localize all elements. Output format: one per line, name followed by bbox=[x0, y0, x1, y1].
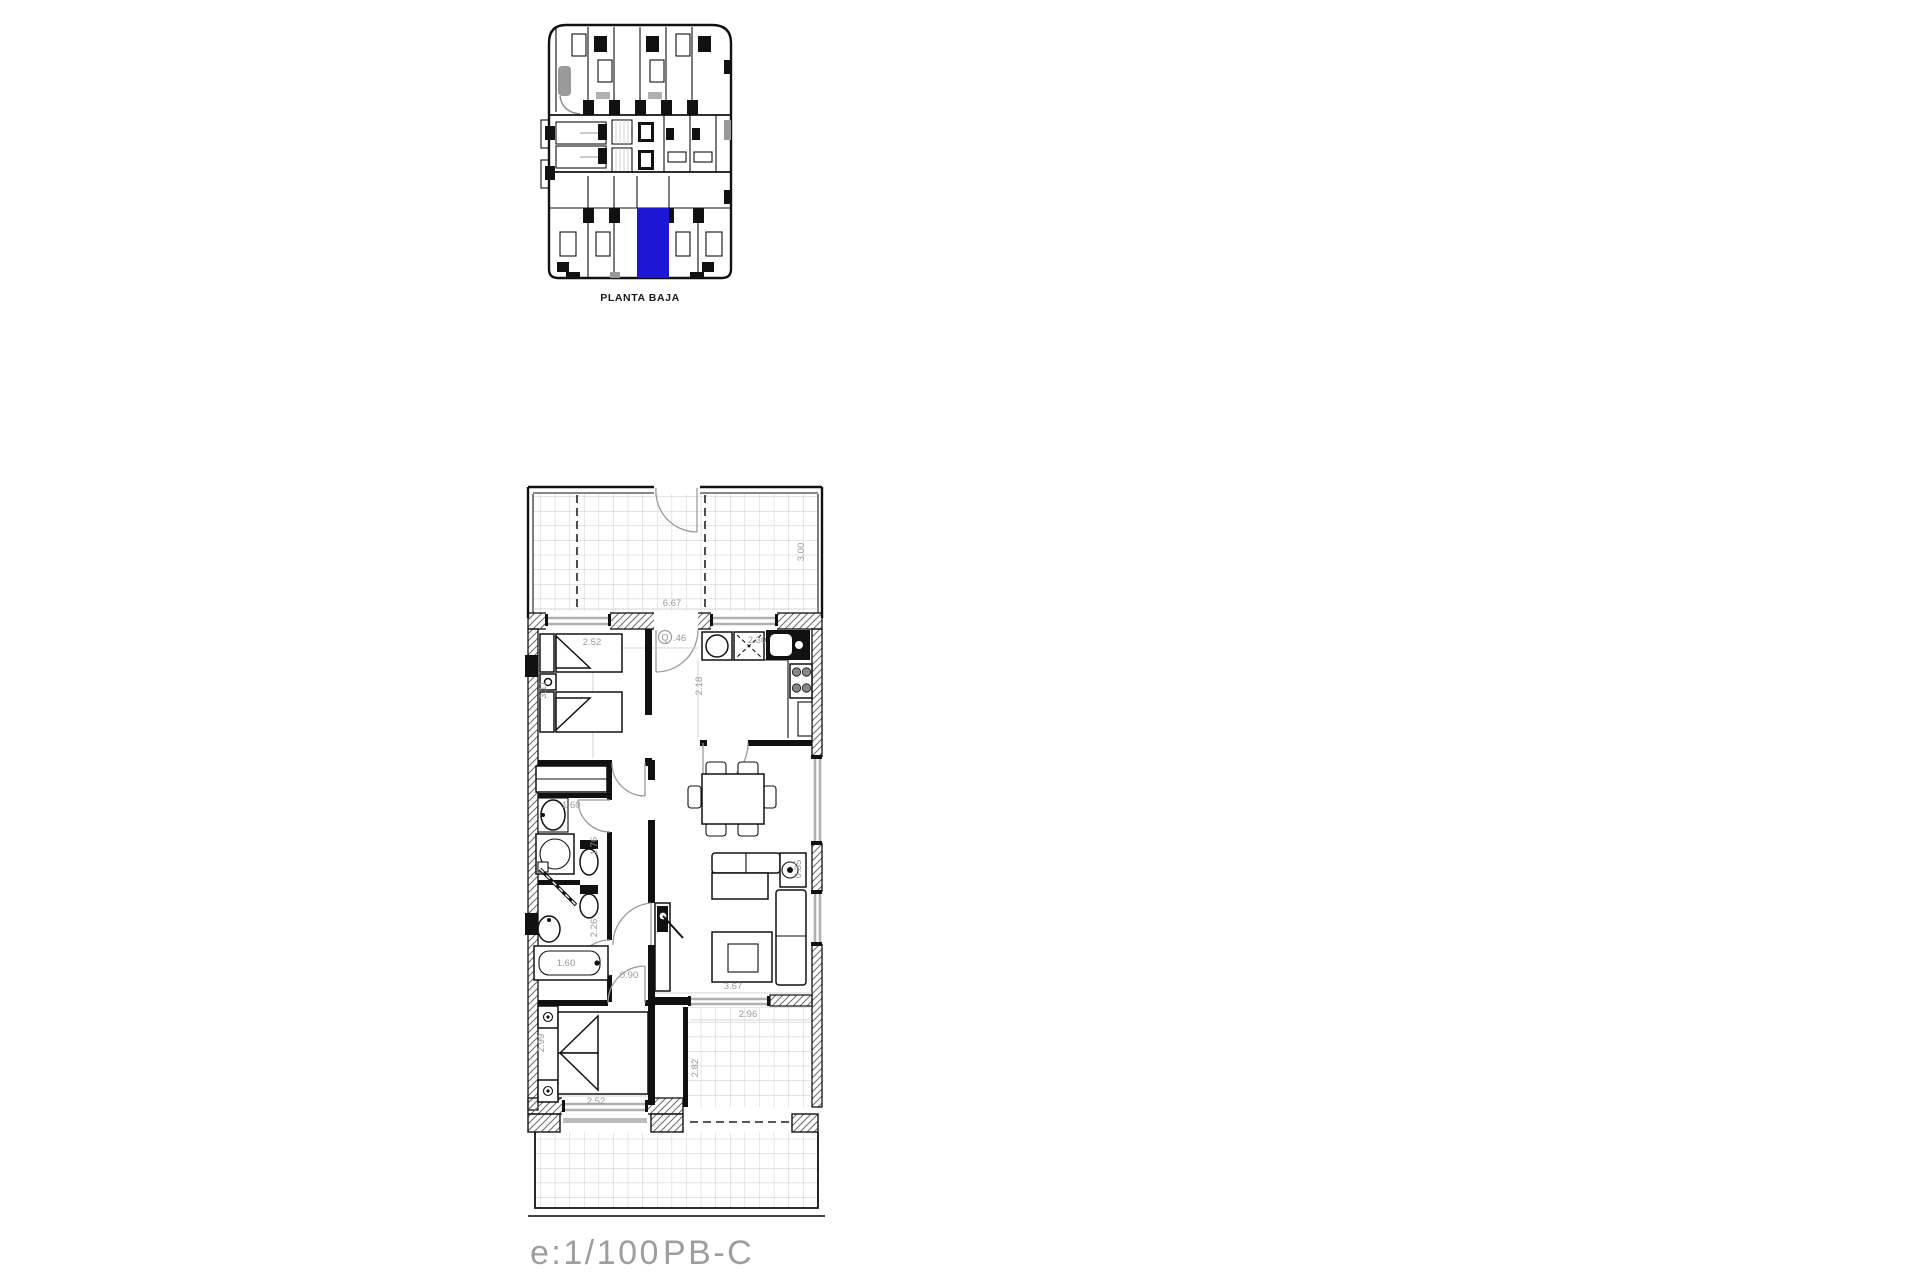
bottom-terrace bbox=[535, 1132, 818, 1208]
top-terrace: 6.67 3.00 bbox=[528, 487, 822, 618]
overview-plan: PLANTA BAJA bbox=[541, 25, 731, 304]
dim-entry-width: .46 bbox=[673, 633, 686, 644]
dim-living-width: 3.67 bbox=[724, 981, 743, 992]
tv-icon bbox=[655, 903, 683, 991]
dim-bedroom2-width: 2.52 bbox=[587, 1096, 606, 1107]
dim-bedroom2-depth: 2.99 bbox=[536, 1034, 547, 1053]
dim-terrace-width: 6.67 bbox=[663, 598, 682, 609]
toilet-icon bbox=[580, 885, 598, 894]
overview-units-top bbox=[572, 27, 711, 115]
dim-terrace2-depth: 2.82 bbox=[690, 1059, 701, 1078]
headboard bbox=[540, 634, 554, 672]
window-living-bottom bbox=[688, 996, 770, 1006]
bathroom-2: 1.60 2.26 0.90 bbox=[534, 869, 638, 981]
bedroom-1: 2.52 3.11 bbox=[538, 634, 645, 758]
dim-bedroom1-depth: 3.11 bbox=[538, 681, 549, 699]
dim-bedroom1-width: 2.52 bbox=[583, 637, 602, 648]
cabinet bbox=[798, 702, 812, 736]
pillar bbox=[651, 1114, 683, 1132]
floor-plan: 6.67 3.00 bbox=[525, 487, 825, 1272]
pillar bbox=[792, 1114, 818, 1132]
bedroom1-door bbox=[612, 763, 645, 796]
bathroom1-door bbox=[578, 800, 610, 832]
dim-bath2-depth: 2.26 bbox=[589, 919, 600, 938]
overview-title: PLANTA BAJA bbox=[600, 292, 680, 304]
unit-label: PB-C bbox=[663, 1234, 754, 1272]
dim-kitchen-width: 2.30 bbox=[748, 635, 767, 646]
dim-bathtub-length: 1.60 bbox=[557, 958, 576, 969]
dim-bath1-depth: 1.76 bbox=[589, 837, 600, 856]
dim-bath1-basin: 1.60 bbox=[562, 800, 581, 811]
pillar bbox=[528, 1114, 560, 1132]
dim-side-table: 0.35 bbox=[793, 860, 804, 879]
dim-corridor-width: 0.90 bbox=[620, 970, 639, 981]
dim-terrace-depth: 3.00 bbox=[796, 543, 807, 562]
terrace-2: 2.96 2.82 bbox=[688, 1007, 812, 1107]
coffee-table-icon bbox=[712, 932, 772, 982]
bathroom-1: 1.60 1.76 bbox=[536, 766, 607, 875]
dining-table-icon bbox=[688, 762, 776, 836]
terrace2-tiles bbox=[688, 1007, 812, 1107]
entry-hall: Q .46 2.18 bbox=[652, 631, 705, 739]
entry-symbol: Q bbox=[661, 633, 668, 644]
living-door bbox=[613, 903, 651, 945]
scale-label: e:1/100 bbox=[530, 1234, 661, 1272]
overview-core bbox=[556, 115, 716, 172]
terrace-tiles bbox=[533, 494, 818, 613]
title-block: e:1/100 PB-C bbox=[528, 1216, 825, 1272]
overview-ramp bbox=[558, 66, 571, 96]
kitchen: 2.30 bbox=[702, 630, 812, 738]
dim-hall-depth: 2.18 bbox=[694, 677, 705, 696]
overview-highlighted-unit bbox=[637, 208, 669, 278]
living-dining: 3.67 0.35 bbox=[655, 762, 812, 1006]
dim-terrace2-width: 2.96 bbox=[739, 1009, 758, 1020]
bedroom-2: 2.52 2.99 bbox=[536, 1006, 648, 1107]
bottom-terrace-tiles bbox=[535, 1132, 818, 1208]
plan-sheet: PLANTA BAJA 6.67 3.00 bbox=[0, 0, 1920, 1280]
